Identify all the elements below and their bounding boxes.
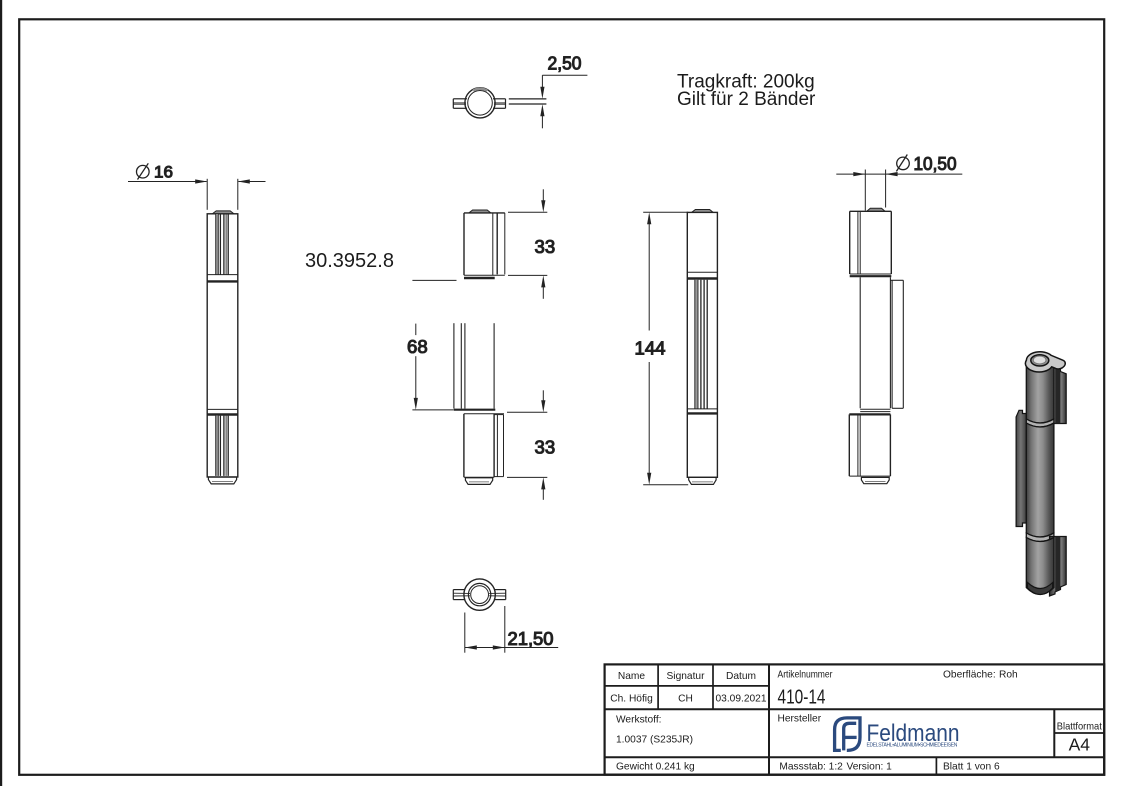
- svg-text:Massstab: 1:2: Massstab: 1:2: [779, 762, 843, 773]
- svg-text:Gilt für 2 Bänder: Gilt für 2 Bänder: [677, 89, 816, 110]
- svg-text:Blatt 1 von 6: Blatt 1 von 6: [943, 762, 1000, 773]
- svg-text:Werkstoff:: Werkstoff:: [616, 715, 661, 726]
- svg-text:Oberfläche:: Oberfläche:: [943, 670, 996, 681]
- svg-text:Signatur: Signatur: [667, 671, 706, 682]
- svg-text:Datum: Datum: [726, 671, 756, 682]
- svg-text:10,50: 10,50: [914, 153, 957, 174]
- svg-text:Artikelnummer: Artikelnummer: [778, 670, 834, 681]
- svg-text:03.09.2021: 03.09.2021: [716, 694, 767, 705]
- svg-text:A4: A4: [1069, 735, 1091, 755]
- svg-text:Roh: Roh: [999, 670, 1018, 681]
- svg-text:144: 144: [635, 338, 666, 359]
- svg-text:21,50: 21,50: [508, 628, 554, 649]
- svg-text:EDELSTAHL•ALUMINIUM•SCHMIEDEEI: EDELSTAHL•ALUMINIUM•SCHMIEDEEISEN: [867, 743, 958, 749]
- svg-text:Gewicht 0.241 kg: Gewicht 0.241 kg: [616, 762, 695, 773]
- svg-text:Version: 1: Version: 1: [847, 762, 893, 773]
- svg-text:1.0037 (S235JR): 1.0037 (S235JR): [616, 735, 693, 746]
- svg-text:Hersteller: Hersteller: [778, 714, 822, 725]
- svg-text:33: 33: [535, 236, 556, 257]
- svg-text:CH: CH: [678, 694, 693, 705]
- svg-text:410-14: 410-14: [778, 687, 826, 709]
- svg-text:30.3952.8: 30.3952.8: [305, 250, 394, 272]
- svg-text:2,50: 2,50: [548, 53, 582, 74]
- svg-text:33: 33: [535, 437, 556, 458]
- svg-text:Ch. Höfig: Ch. Höfig: [610, 694, 653, 705]
- svg-text:68: 68: [407, 336, 428, 357]
- svg-text:16: 16: [154, 162, 173, 181]
- svg-text:Blattformat: Blattformat: [1057, 722, 1102, 733]
- svg-text:Name: Name: [618, 671, 646, 682]
